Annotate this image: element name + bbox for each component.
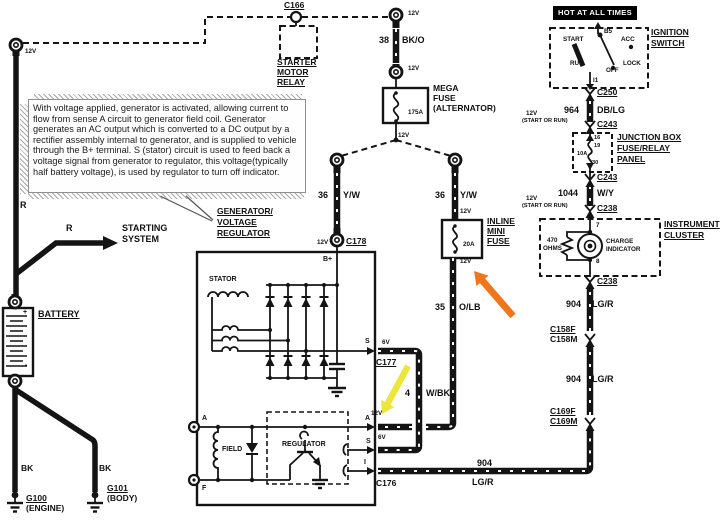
wire-904b-color: LG/R <box>592 300 614 309</box>
field-label: FIELD <box>222 446 242 453</box>
connector-c238-a: C238 <box>597 204 617 213</box>
ignition-terminal-b5: B5 <box>604 29 612 36</box>
ignition-terminal-i1: I1 <box>593 78 598 85</box>
instrument-cluster-title: CLUSTER <box>664 231 704 240</box>
voltage-label: 12V <box>460 259 471 266</box>
terminal-f-left: F <box>202 485 206 492</box>
wire-904-lgr <box>378 288 590 471</box>
connector-c243-b: C243 <box>597 173 617 182</box>
wire-36-yw-right <box>452 166 459 220</box>
voltage-label: 12V <box>408 66 419 73</box>
terminal-s-stator: S <box>365 338 370 345</box>
junction-box-title: PANEL <box>617 155 645 164</box>
mega-fuse-label: MEGA <box>433 84 459 93</box>
wire-904b-number: 904 <box>566 300 581 309</box>
ground-g101-symbol <box>87 492 103 512</box>
connector-c177: C177 <box>376 358 396 367</box>
stator-label: STATOR <box>209 276 237 283</box>
terminal-i-right: I <box>364 459 366 466</box>
voltage-label: 12V <box>408 11 419 18</box>
wire-904c-color: LG/R <box>592 375 614 384</box>
wire-904c-number: 904 <box>566 375 581 384</box>
starting-system-label: STARTING <box>122 224 167 233</box>
ground-g101-sub: (BODY) <box>107 494 137 503</box>
inline-fuse-label: FUSE <box>487 237 510 246</box>
inline-fuse-label: INLINE <box>487 217 515 226</box>
ignition-switch-title: IGNITION <box>651 28 689 37</box>
wire-36a-number: 36 <box>318 191 328 200</box>
connector-c250: C250 <box>597 88 617 97</box>
condition-label: (START OR RUN) <box>522 119 568 125</box>
terminal-a-left: A <box>202 415 207 422</box>
ground-g100-symbol <box>7 492 23 512</box>
battery-label: BATTERY <box>38 310 80 319</box>
resistor-value: 470 <box>547 238 558 245</box>
voltage-label: 6V <box>378 435 386 442</box>
connector-c169m: C169M <box>550 417 577 426</box>
ground-g101-label: G101 <box>107 484 128 493</box>
wire-38-number: 38 <box>379 36 389 45</box>
wire-36b-number: 36 <box>435 191 445 200</box>
mega-fuse-rating: 175A <box>408 110 423 117</box>
wire-904a-number: 904 <box>477 459 492 468</box>
charge-indicator-label: INDICATOR <box>606 247 640 254</box>
mega-fuse-split-dashes <box>341 138 451 156</box>
ground-g100-sub: (ENGINE) <box>26 504 64 513</box>
wire-4-number: 4 <box>405 389 410 398</box>
note-callout <box>160 196 213 221</box>
generator-title: VOLTAGE <box>217 218 257 227</box>
battery-hot-dashed-run <box>23 12 390 43</box>
relay-label: RELAY <box>277 78 305 87</box>
description-note: With voltage applied, generator is activ… <box>28 99 306 193</box>
junction-fuse-rating: 10A <box>577 152 587 158</box>
wiring-diagram-page: With voltage applied, generator is activ… <box>0 0 721 522</box>
ignition-pos-lock: LOCK <box>623 61 641 68</box>
wire-4-color: W/BK <box>426 389 450 398</box>
wire-36a-color: Y/W <box>343 191 360 200</box>
regulator-box <box>267 412 375 488</box>
connector-c238-b: C238 <box>597 277 617 286</box>
ignition-pos-run: RUN <box>570 61 584 68</box>
wire-1044-color: W/Y <box>597 189 614 198</box>
connector-c158f: C158F <box>550 325 576 334</box>
battery-minus: - <box>25 362 27 369</box>
regulator-label: REGULATOR <box>282 441 326 448</box>
voltage-label: 12V <box>25 49 36 56</box>
connector-c178: C178 <box>346 237 366 246</box>
junction-pin-out: 30 <box>592 161 598 167</box>
voltage-label: 12V <box>460 209 471 216</box>
wire-color-bk-right: BK <box>99 464 111 473</box>
voltage-label: 12V <box>398 133 409 140</box>
voltage-label: 6V <box>382 340 390 347</box>
stator-s-output <box>306 347 375 355</box>
stator-windings <box>208 292 306 351</box>
resistor-unit: OHMS <box>543 246 562 253</box>
rectifier-bridge <box>266 283 340 380</box>
hot-at-all-times-banner: HOT AT ALL TIMES <box>553 6 637 20</box>
voltage-label: 12V <box>526 111 537 118</box>
ignition-pos-acc: ACC <box>621 37 635 44</box>
wire-color-r1: R <box>20 201 27 210</box>
junction-fuse-id: 19 <box>594 144 600 150</box>
generator-title: REGULATOR <box>217 229 270 238</box>
inline-fuse-label: MINI <box>487 227 505 236</box>
inline-fuse-rating: 20A <box>463 242 475 249</box>
connector-c176: C176 <box>376 479 396 488</box>
ignition-pos-start: START <box>563 37 584 44</box>
connector-c243-a: C243 <box>597 120 617 129</box>
relay-label: STARTER <box>277 58 317 67</box>
wire-964-color: DB/LG <box>597 106 625 115</box>
condition-label: (START OR RUN) <box>522 204 568 210</box>
terminal-s-right: S <box>366 438 371 445</box>
instrument-cluster-title: INSTRUMENT <box>664 220 720 229</box>
ground-g100-label: G100 <box>26 494 47 503</box>
wire-1044-number: 1044 <box>558 189 578 198</box>
battery-symbol <box>3 308 33 376</box>
generator-title: GENERATOR/ <box>217 207 273 216</box>
wire-color-bk-left: BK <box>21 464 33 473</box>
junction-box-title: JUNCTION BOX <box>617 133 681 142</box>
ignition-pos-off: OFF <box>606 68 619 75</box>
diagram-linework <box>0 0 721 522</box>
junction-pin-in: 16 <box>594 136 600 142</box>
battery-plus: + <box>23 309 27 316</box>
relay-label: MOTOR <box>277 68 308 77</box>
cluster-pin-out: 8 <box>596 259 600 266</box>
mega-fuse-label: FUSE <box>433 94 456 103</box>
wire-35-number: 35 <box>435 303 445 312</box>
ignition-switch-box <box>550 22 648 88</box>
junction-box-title: FUSE/RELAY <box>617 144 670 153</box>
mega-fuse-label: (ALTERNATOR) <box>433 104 496 113</box>
cluster-pin-in: 7 <box>596 223 600 230</box>
ignition-switch-title: SWITCH <box>651 39 685 48</box>
inline-mini-fuse-box <box>442 220 482 258</box>
connector-c158m: C158M <box>550 335 577 344</box>
wire-color-r2: R <box>66 224 73 233</box>
starter-motor-relay-box <box>280 26 317 58</box>
bplus-rail-capacitor <box>328 252 346 396</box>
charge-indicator-label: CHARGE <box>606 239 633 246</box>
voltage-label: 12V <box>526 196 537 203</box>
wire-36b-color: Y/W <box>460 191 477 200</box>
voltage-label: 12V <box>317 240 328 247</box>
bplus-terminal-label: B+ <box>323 256 332 263</box>
charge-indicator-circuit <box>562 222 602 277</box>
wire-35-color: O/LB <box>459 303 481 312</box>
field-circuit <box>189 422 375 485</box>
wire-38-color: BK/O <box>402 36 425 45</box>
wire-964-number: 964 <box>564 106 579 115</box>
wire-904a-color: LG/R <box>472 478 494 487</box>
connector-c166: C166 <box>284 1 304 10</box>
starting-system-label: SYSTEM <box>122 235 159 244</box>
connector-c169f: C169F <box>550 407 576 416</box>
terminal-a-right: A <box>365 415 370 422</box>
voltage-label: 12V <box>371 411 382 418</box>
